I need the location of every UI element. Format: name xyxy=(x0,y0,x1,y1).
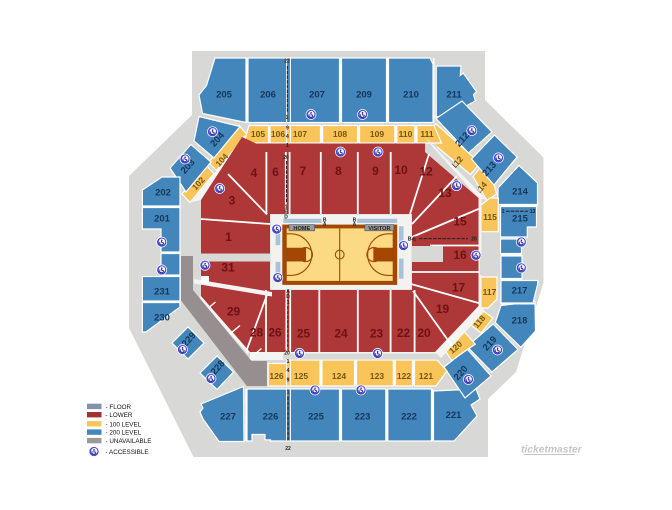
svg-text:215: 215 xyxy=(512,214,529,225)
svg-text:19: 19 xyxy=(436,302,450,316)
svg-text:24: 24 xyxy=(334,327,348,341)
svg-text:218: 218 xyxy=(512,316,528,327)
svg-text:1: 1 xyxy=(287,390,290,396)
svg-text:206: 206 xyxy=(260,90,276,101)
svg-text:231: 231 xyxy=(154,287,171,298)
svg-text:10: 10 xyxy=(394,163,408,177)
svg-text:9: 9 xyxy=(372,164,379,178)
svg-text:25: 25 xyxy=(297,327,311,341)
svg-text:106: 106 xyxy=(271,129,285,139)
svg-text:1: 1 xyxy=(502,209,505,215)
svg-text:205: 205 xyxy=(216,90,233,101)
svg-text:- FLOOR: - FLOOR xyxy=(106,404,132,411)
svg-text:1: 1 xyxy=(286,115,289,121)
svg-text:227: 227 xyxy=(220,412,236,423)
svg-text:214: 214 xyxy=(512,187,529,198)
svg-text:1: 1 xyxy=(286,143,289,149)
svg-text:110: 110 xyxy=(399,129,413,139)
svg-text:28: 28 xyxy=(250,326,264,340)
svg-text:217: 217 xyxy=(512,286,528,297)
svg-text:223: 223 xyxy=(355,412,371,423)
svg-text:124: 124 xyxy=(332,371,346,381)
svg-text:A: A xyxy=(323,222,327,228)
svg-text:108: 108 xyxy=(333,129,347,139)
svg-text:A: A xyxy=(353,222,357,228)
svg-text:201: 201 xyxy=(154,214,171,225)
svg-text:6: 6 xyxy=(272,165,279,179)
svg-text:ticketmaster: ticketmaster xyxy=(521,445,583,456)
svg-text:- UNAVAILABLE: - UNAVAILABLE xyxy=(106,438,152,445)
svg-text:22: 22 xyxy=(285,446,291,452)
svg-text:107: 107 xyxy=(293,129,307,139)
svg-text:122: 122 xyxy=(397,371,411,381)
svg-text:121: 121 xyxy=(419,371,433,381)
svg-text:VISITOR: VISITOR xyxy=(368,226,390,232)
svg-text:3: 3 xyxy=(229,194,236,208)
svg-text:115: 115 xyxy=(483,212,497,222)
svg-text:20: 20 xyxy=(471,236,477,242)
svg-text:8: 8 xyxy=(335,164,342,178)
svg-text:13: 13 xyxy=(438,186,452,200)
svg-text:20: 20 xyxy=(284,351,290,357)
svg-text:- ACCESSIBLE: - ACCESSIBLE xyxy=(106,449,149,456)
svg-text:26: 26 xyxy=(268,326,282,340)
svg-text:207: 207 xyxy=(309,90,325,101)
svg-text:- 100 LEVEL: - 100 LEVEL xyxy=(106,421,142,428)
svg-text:230: 230 xyxy=(154,313,170,324)
svg-text:4: 4 xyxy=(251,166,258,180)
svg-text:222: 222 xyxy=(401,412,417,423)
svg-text:111: 111 xyxy=(420,129,434,139)
svg-text:9: 9 xyxy=(287,378,290,384)
svg-text:9: 9 xyxy=(286,126,289,132)
svg-text:4: 4 xyxy=(286,134,289,140)
svg-text:- 200 LEVEL: - 200 LEVEL xyxy=(106,430,142,437)
svg-text:221: 221 xyxy=(446,410,463,421)
svg-text:1: 1 xyxy=(225,230,232,244)
svg-text:1: 1 xyxy=(287,359,290,365)
svg-text:HOME: HOME xyxy=(293,226,310,232)
svg-text:211: 211 xyxy=(446,90,462,101)
svg-text:31: 31 xyxy=(221,261,235,275)
svg-text:105: 105 xyxy=(251,129,265,139)
svg-text:202: 202 xyxy=(155,188,171,199)
svg-text:12: 12 xyxy=(419,165,433,179)
svg-text:20: 20 xyxy=(417,326,431,340)
svg-text:225: 225 xyxy=(308,412,325,423)
svg-text:4: 4 xyxy=(287,368,290,374)
svg-text:22: 22 xyxy=(397,326,411,340)
svg-text:17: 17 xyxy=(452,281,466,295)
svg-text:125: 125 xyxy=(294,371,308,381)
svg-text:126: 126 xyxy=(269,371,283,381)
svg-text:13: 13 xyxy=(530,209,536,215)
svg-text:109: 109 xyxy=(370,129,384,139)
svg-text:29: 29 xyxy=(227,305,241,319)
svg-text:123: 123 xyxy=(370,371,384,381)
svg-text:20: 20 xyxy=(283,155,289,161)
svg-text:- LOWER: - LOWER xyxy=(106,412,133,419)
svg-text:210: 210 xyxy=(403,90,419,101)
svg-text:15: 15 xyxy=(453,215,467,229)
svg-text:117: 117 xyxy=(483,287,497,297)
svg-text:7: 7 xyxy=(300,164,307,178)
svg-text:B-E: B-E xyxy=(408,236,417,242)
svg-text:16: 16 xyxy=(453,248,467,262)
svg-text:23: 23 xyxy=(370,327,384,341)
svg-text:226: 226 xyxy=(263,412,279,423)
svg-text:1: 1 xyxy=(287,300,290,306)
svg-text:22: 22 xyxy=(284,59,290,65)
svg-text:209: 209 xyxy=(356,90,372,101)
svg-text:D: D xyxy=(284,215,288,221)
